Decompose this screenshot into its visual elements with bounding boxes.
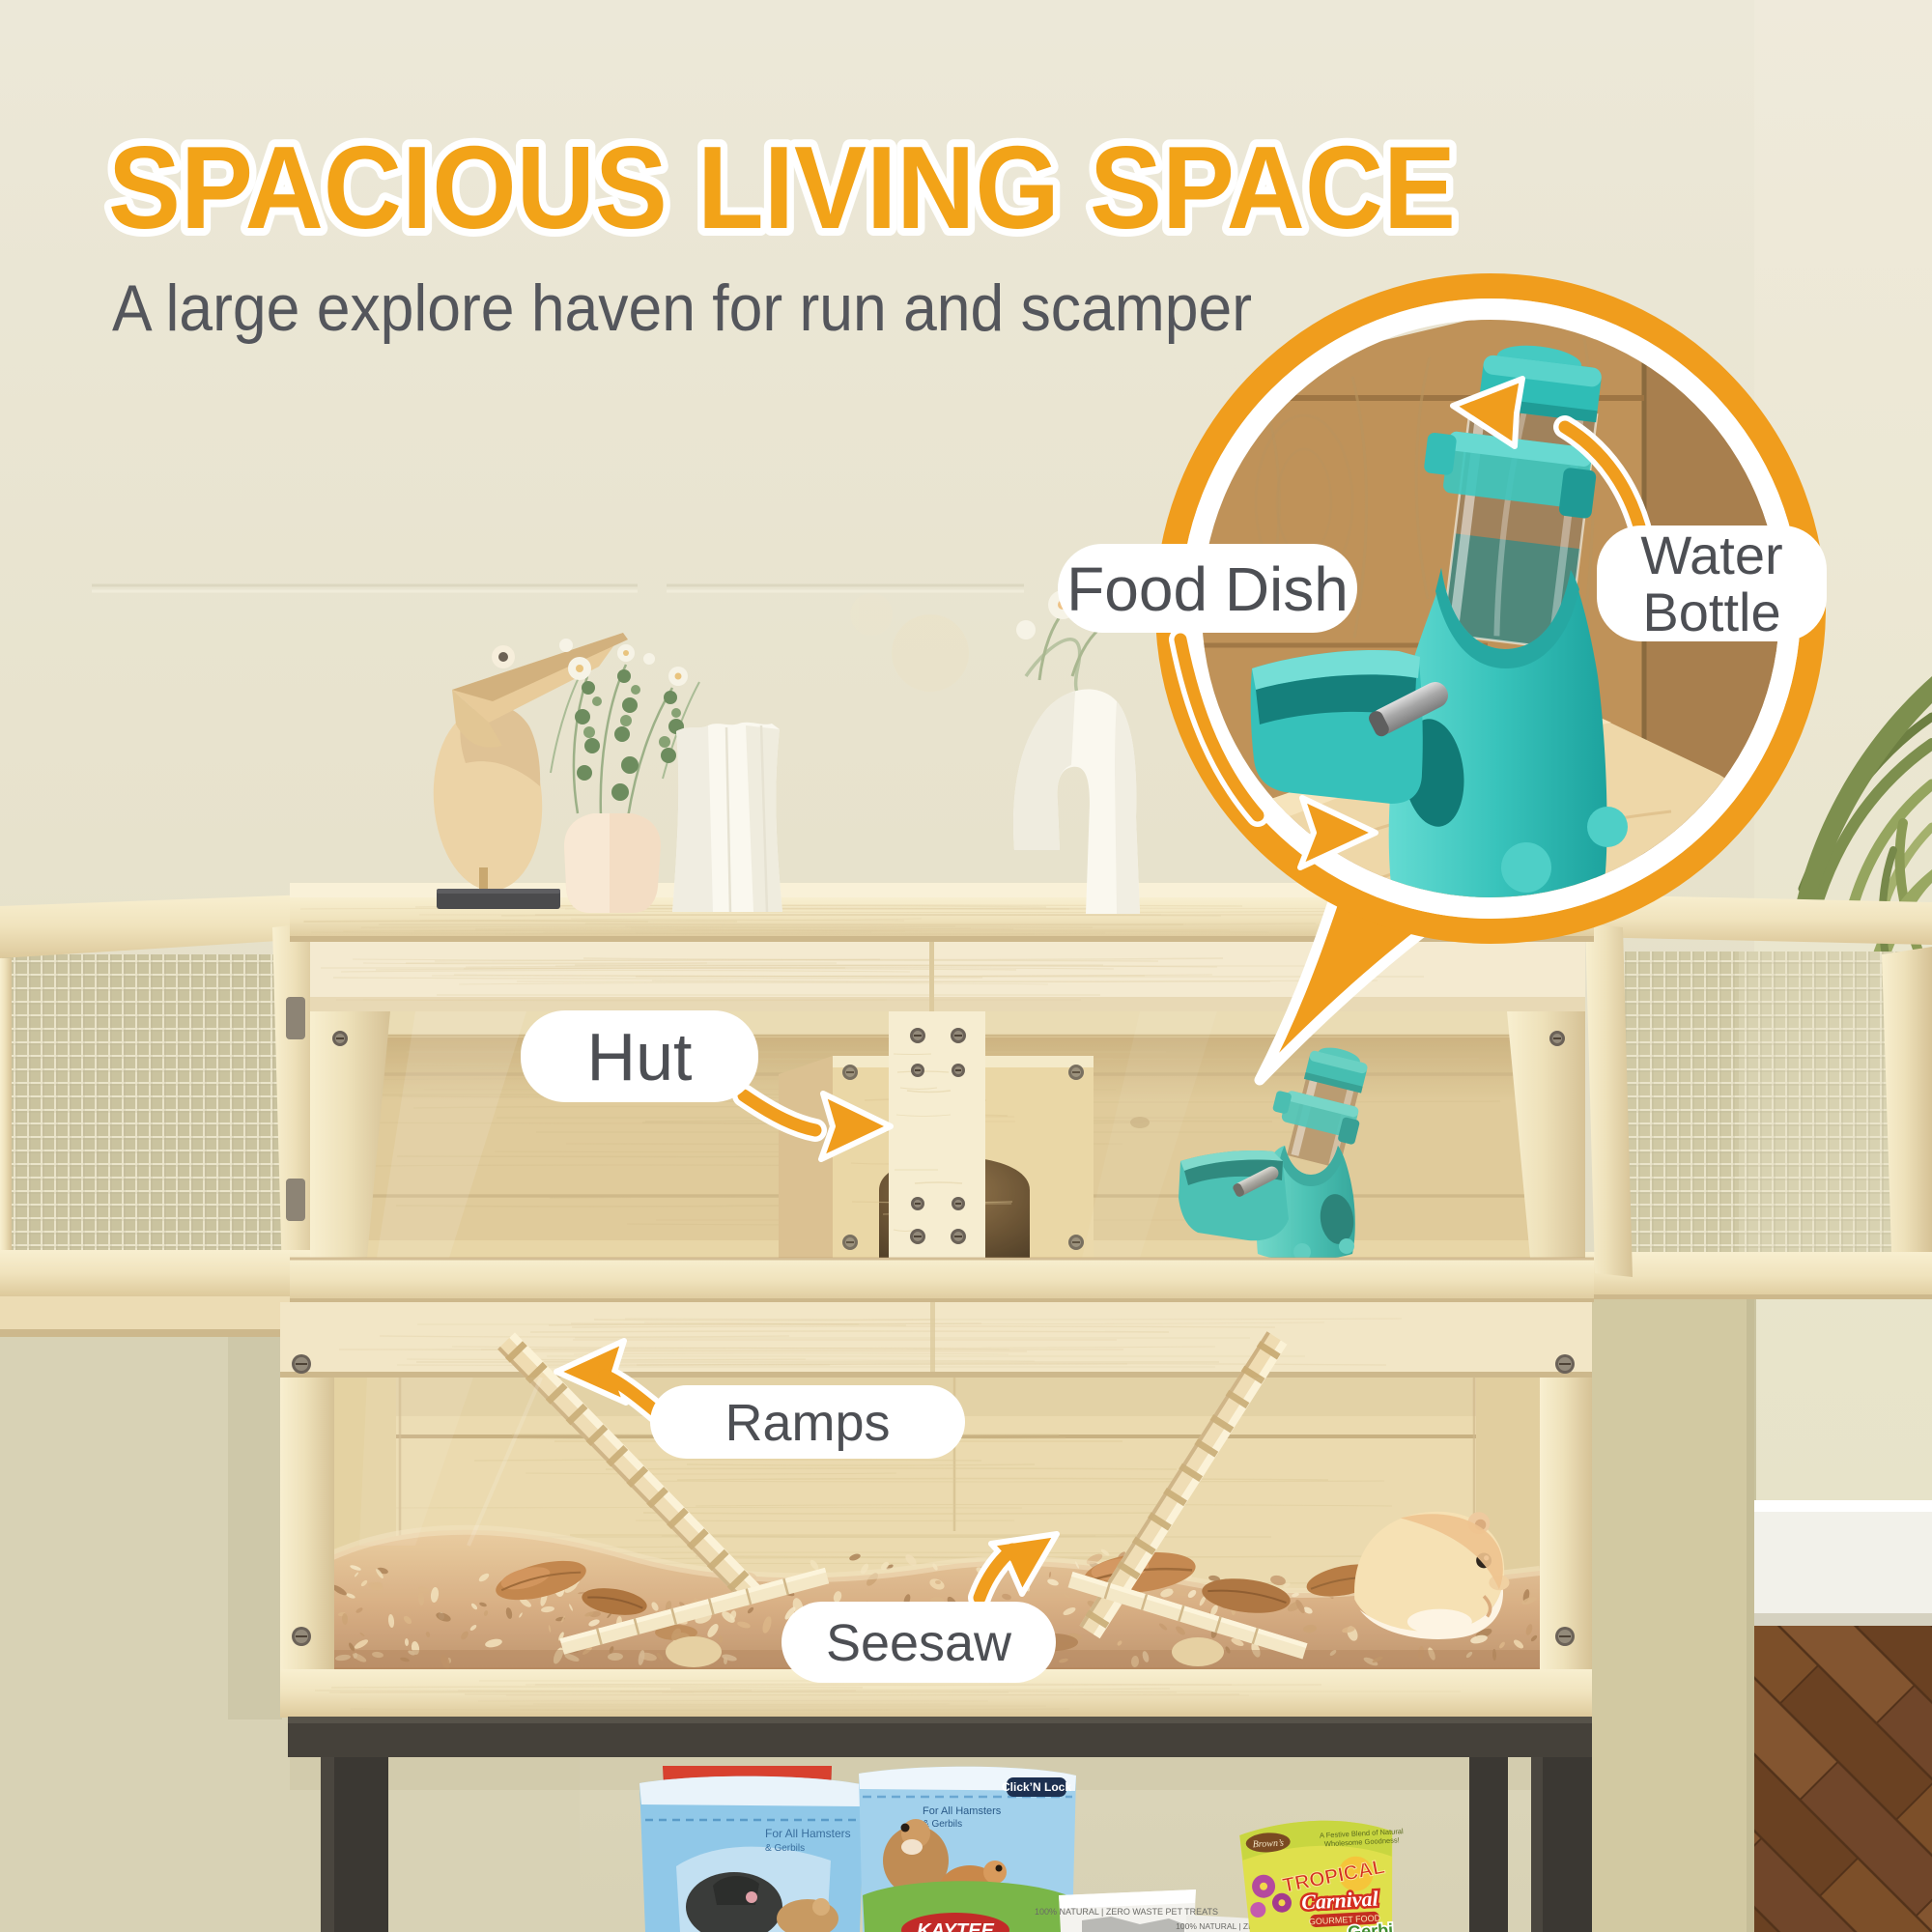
svg-text:SPACIOUS LIVING SPACE: SPACIOUS LIVING SPACE [108, 122, 1456, 253]
svg-text:For All Hamsters: For All Hamsters [765, 1827, 851, 1840]
svg-text:Food Dish: Food Dish [1066, 554, 1349, 624]
svg-text:Click’N Lock: Click’N Lock [1002, 1780, 1071, 1794]
svg-text:KAYTEE: KAYTEE [917, 1920, 994, 1932]
svg-text:Hut: Hut [587, 1019, 693, 1094]
svg-text:Carnival: Carnival [1301, 1887, 1380, 1915]
svg-text:For All Hamsters: For All Hamsters [923, 1805, 1002, 1817]
svg-text:Seesaw: Seesaw [826, 1614, 1012, 1672]
svg-text:Brown’s: Brown’s [1252, 1838, 1284, 1851]
svg-text:Gerbi: Gerbi [1348, 1920, 1394, 1932]
svg-text:A large explore haven for run: A large explore haven for run and scampe… [112, 271, 1252, 345]
svg-text:Bottle: Bottle [1642, 582, 1780, 642]
svg-text:& Gerbils: & Gerbils [765, 1843, 805, 1854]
svg-text:Water: Water [1640, 525, 1782, 585]
svg-text:Ramps: Ramps [724, 1394, 890, 1452]
